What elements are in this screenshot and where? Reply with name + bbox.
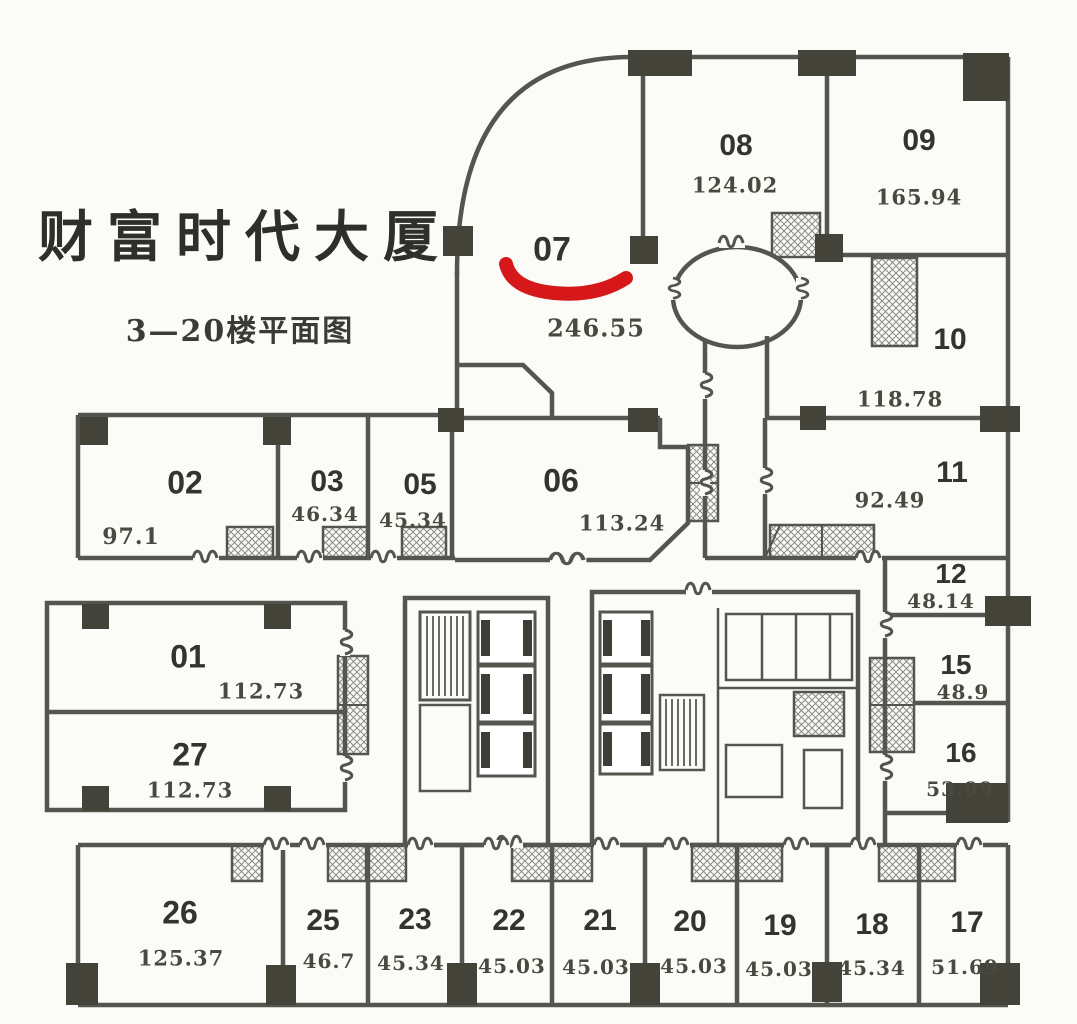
room-12-area: 48.14 [907,589,975,613]
room-06-area: 113.24 [579,511,665,536]
core-stairs2-icon [660,695,704,770]
room-05-area: 45.34 [379,508,447,532]
room-16-number: 16 [945,737,976,769]
room-10-area: 118.78 [857,387,943,412]
room-17-area: 51.69 [931,955,999,979]
room-23-number: 23 [398,903,431,937]
room-09-area: 165.94 [876,185,962,210]
room-25-area: 46.7 [303,949,356,973]
room-15-area: 48.9 [937,680,990,704]
stairs-icon [420,612,470,791]
room-05-number: 05 [403,468,436,502]
circular-lobby [673,247,801,347]
room-11-area: 92.49 [855,488,926,513]
room-16-area: 53.99 [926,777,994,801]
room-01-number: 01 [170,639,206,676]
room-22-area: 45.03 [478,954,546,978]
room-08-area: 124.02 [692,173,778,198]
elevator-icon [478,612,652,776]
room-18-area: 45.34 [838,956,906,980]
room-07-area: 246.55 [547,314,645,343]
room-20-number: 20 [673,905,706,939]
room-02-area: 97.1 [102,524,160,550]
floor-subtitle: 3—20楼平面图 [105,306,375,350]
room-21-area: 45.03 [562,955,630,979]
room-27-number: 27 [172,737,208,774]
room-19-area: 45.03 [745,957,813,981]
room-17-number: 17 [950,906,983,940]
room-23-area: 45.34 [377,951,445,975]
room-22-number: 22 [492,904,525,938]
room-01-area: 112.73 [218,679,304,704]
room-10-number: 10 [933,323,966,357]
room-18-number: 18 [855,908,888,942]
room-07-number: 07 [533,231,571,270]
room-03-number: 03 [310,465,343,499]
room-03-area: 46.34 [291,502,359,526]
room-02-number: 02 [167,465,203,502]
room-06-number: 06 [543,463,579,500]
room-25-number: 25 [306,904,339,938]
building-title: 财富时代大厦 [30,192,460,272]
room-11-number: 11 [936,456,968,490]
room-19-number: 19 [763,909,796,943]
room-20-area: 45.03 [660,954,728,978]
room-26-area: 125.37 [138,946,224,971]
room-27-area: 112.73 [147,778,233,803]
room-12-number: 12 [935,558,966,590]
room-09-number: 09 [902,124,935,158]
room-26-number: 26 [162,895,198,932]
room-15-number: 15 [940,649,971,681]
room-08-number: 08 [719,129,752,163]
room-21-number: 21 [583,904,616,938]
floorplan-canvas: 财富时代大厦 3—20楼平面图 07 246.55 08 124.02 09 1… [0,0,1077,1024]
